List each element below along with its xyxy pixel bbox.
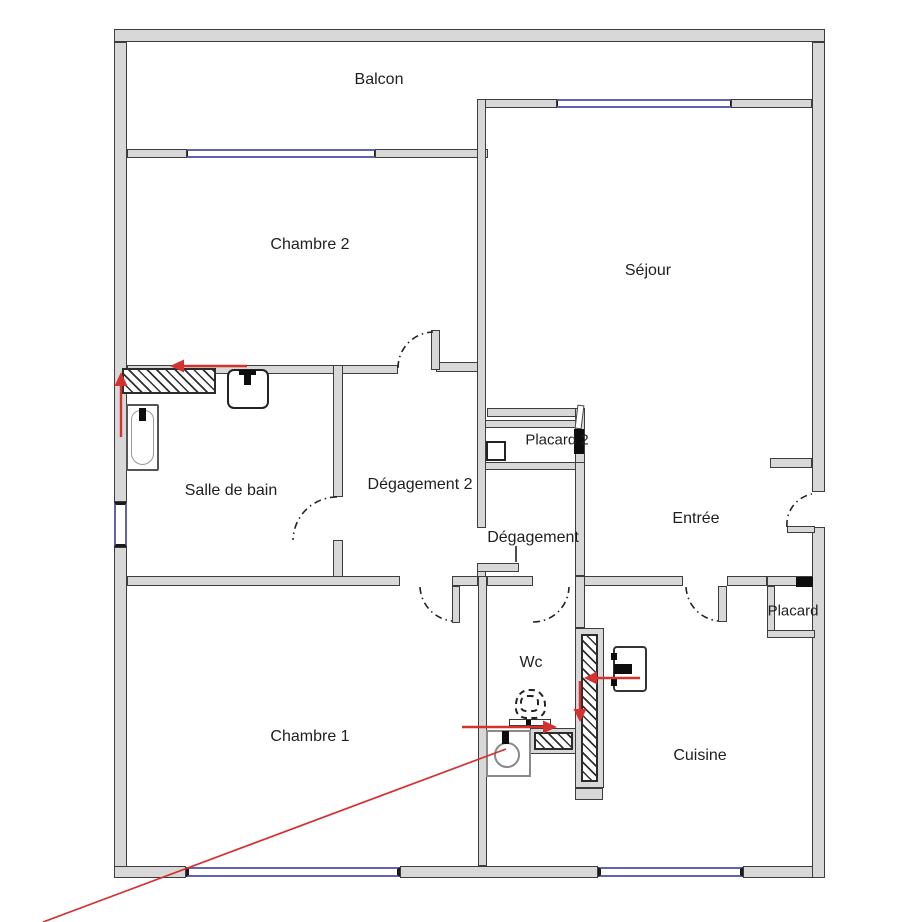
wall-outer-right bbox=[812, 527, 825, 878]
wall-entree-stub bbox=[770, 458, 812, 468]
door-leaf-chambre1 bbox=[452, 586, 460, 623]
wall-outer-top bbox=[114, 29, 825, 42]
kitchen-sink-knob bbox=[611, 679, 617, 686]
room-label-entree: Entrée bbox=[672, 510, 719, 528]
room-label-degagement: Dégagement bbox=[487, 529, 579, 547]
washbasin-faucet-icon bbox=[244, 373, 251, 385]
wall-chambre1-wc bbox=[478, 576, 487, 866]
bathtub-faucet-icon bbox=[139, 408, 146, 421]
washing-machine-drum bbox=[494, 742, 520, 768]
wall-balcon-sejour bbox=[477, 99, 557, 108]
wall-degagement-stub bbox=[477, 563, 519, 572]
door-arc-cuisine bbox=[686, 587, 718, 621]
toilet-seat bbox=[520, 695, 539, 712]
wall-sejour-placard2 bbox=[487, 408, 578, 417]
annotation-diagonal-line bbox=[43, 749, 506, 922]
wall-balcon-chambre2 bbox=[127, 149, 187, 158]
window-chambre2-balcon bbox=[185, 149, 377, 158]
hatched-wall-bathroom bbox=[122, 368, 216, 394]
wall-corridor-right bbox=[575, 462, 585, 576]
room-label-salle-de-bain: Salle de bain bbox=[185, 482, 278, 500]
room-label-chambre2: Chambre 2 bbox=[270, 236, 349, 254]
door-arc-chambre2 bbox=[398, 332, 433, 368]
washing-machine-icon bbox=[486, 730, 531, 777]
bathtub-icon bbox=[126, 404, 159, 471]
wall-balcon-sejour bbox=[731, 99, 812, 108]
closet-shelf-icon bbox=[486, 441, 506, 461]
toilet-dot bbox=[526, 720, 531, 725]
room-label-balcon: Balcon bbox=[355, 71, 404, 89]
wall-placard2-bottom bbox=[485, 462, 578, 470]
black-mark-placard bbox=[796, 577, 813, 587]
toilet-icon bbox=[515, 689, 546, 719]
wall-outer-bottom bbox=[114, 866, 186, 878]
wall-hallway bbox=[452, 576, 478, 586]
door-arc-salle-de-bain bbox=[293, 497, 337, 540]
wall-balcon-chambre2 bbox=[375, 149, 488, 158]
door-arc-chambre1 bbox=[420, 587, 452, 621]
door-leaf-chambre2 bbox=[431, 330, 440, 370]
wall-hallway bbox=[487, 576, 533, 586]
room-label-sejour: Séjour bbox=[625, 262, 671, 280]
washbasin-icon bbox=[227, 369, 269, 409]
wall-outer-left bbox=[114, 547, 127, 878]
window-bathroom bbox=[114, 502, 127, 547]
wall-outer-right bbox=[812, 42, 825, 492]
room-label-wc: Wc bbox=[519, 654, 542, 672]
wall-placard-bottom bbox=[767, 630, 815, 638]
room-label-placard: Placard bbox=[768, 602, 819, 619]
wall-hallway bbox=[727, 576, 767, 586]
wall-hallway bbox=[127, 576, 400, 586]
window-chambre1 bbox=[186, 867, 400, 877]
wall-outer-bottom bbox=[400, 866, 598, 878]
room-label-degagement2: Dégagement 2 bbox=[368, 476, 473, 494]
kitchen-sink-faucet-icon bbox=[614, 664, 632, 674]
wall-chambre2-sdb bbox=[436, 362, 478, 372]
wall-wc-right bbox=[575, 576, 585, 628]
room-label-cuisine: Cuisine bbox=[673, 747, 726, 765]
room-label-placard2: Placard 2 bbox=[525, 431, 588, 448]
wall-placard2-top bbox=[485, 420, 578, 428]
hatched-wall-wc-v bbox=[581, 634, 598, 782]
door-arc-entree bbox=[787, 494, 812, 527]
hatched-wall-wc-h bbox=[534, 732, 573, 750]
hatched-wall-cap bbox=[575, 788, 603, 800]
room-label-chambre1: Chambre 1 bbox=[270, 728, 349, 746]
door-leaf-cuisine bbox=[718, 586, 727, 622]
window-sejour-balcon bbox=[555, 99, 733, 108]
kitchen-sink-icon bbox=[613, 646, 647, 692]
door-leaf-entree bbox=[787, 526, 815, 533]
floor-plan: Balcon Chambre 2 Séjour Salle de bain Dé… bbox=[0, 0, 905, 922]
wall-sdb-right bbox=[333, 365, 343, 497]
window-cuisine bbox=[598, 867, 743, 877]
kitchen-sink-knob bbox=[611, 653, 617, 660]
door-arc-wc bbox=[533, 587, 569, 622]
washing-machine-tap-icon bbox=[502, 731, 509, 744]
wall-hallway bbox=[575, 576, 683, 586]
